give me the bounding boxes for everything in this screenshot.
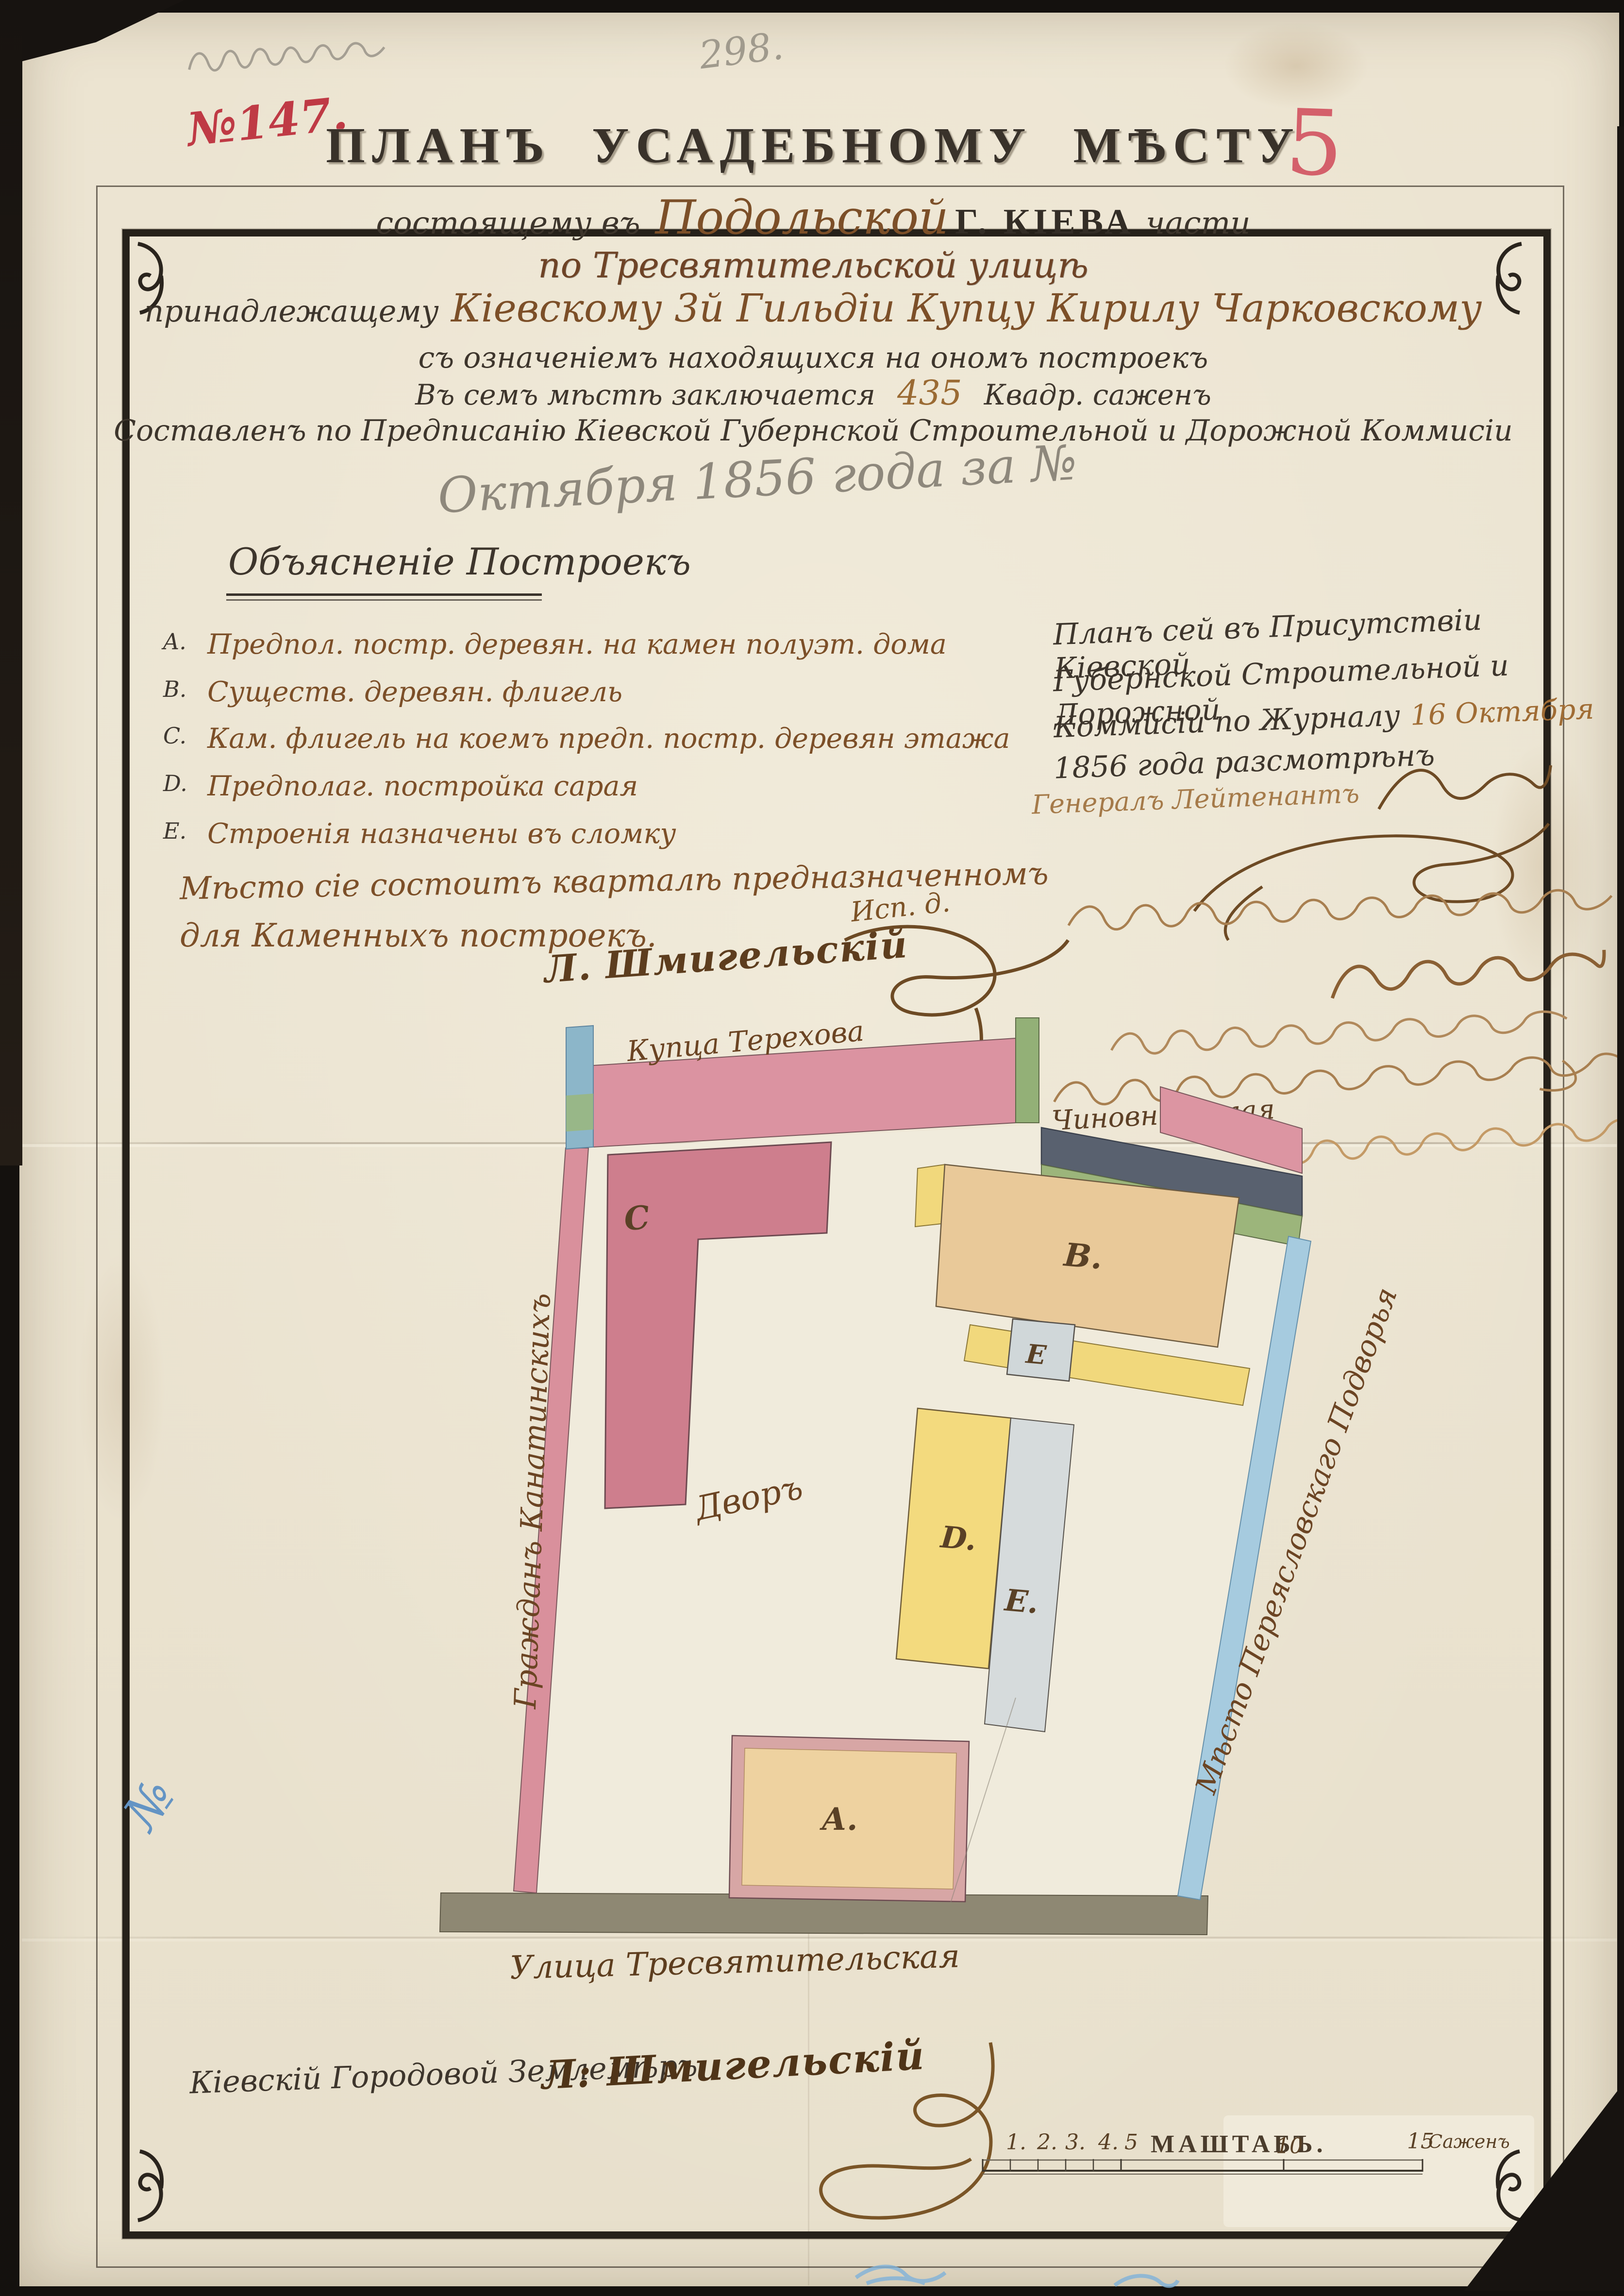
scale-tick-label-1: 1. (1006, 2130, 1026, 2155)
situated-city: Г. КІЕВА (955, 202, 1135, 242)
scale-tick-label-10: 10 (1276, 2134, 1303, 2159)
plan-letter-c: C (622, 1198, 652, 1238)
plan-letter-b: B. (1062, 1235, 1104, 1277)
boundary-cap-blue-green (566, 1094, 593, 1131)
corner-ornament-bottom-left (135, 2149, 193, 2222)
document-scan: 298. №147. 5 ПЛАНЪ УСАДЕБНОМУ МѢСТУ сост… (19, 13, 1619, 2286)
situated-prefix: состоящему въ (376, 205, 640, 241)
owner-name: Кіевскому 3й Гильдіи Купцу Кирилу Чарков… (451, 286, 1482, 331)
header-contents-line: съ означеніемъ находящихся на ономъ пост… (104, 341, 1522, 375)
legend-text-d: Предполаг. постройка сарая (207, 770, 638, 802)
situated-district: Подольской (655, 190, 949, 245)
legend-heading: Объясненіе Построекъ (228, 540, 691, 583)
boundary-cap-green (1016, 1018, 1039, 1123)
legend-text-e: Строенія назначены въ сломку (207, 818, 676, 850)
scale-tick-label-3: 3. (1065, 2130, 1086, 2155)
legend-item-d: D. Предполаг. постройка сарая (163, 770, 1134, 802)
header-area-line: Въ семъ мѣстѣ заключается 435 Квадр. саж… (104, 373, 1522, 413)
blue-wash-mark-1 (852, 2258, 949, 2292)
legend-key-a: A. (163, 628, 205, 655)
legend-item-a: A. Предпол. постр. деревян. на камен пол… (163, 628, 1134, 660)
legend-text-c: Кам. флигель на коемъ предп. постр. дере… (207, 723, 1010, 755)
scale-units: Саженъ (1428, 2131, 1510, 2152)
plan-letter-e-small: Е (1024, 1338, 1048, 1371)
plan-letter-e-strip: E. (1003, 1582, 1040, 1621)
area-units: Квадр. саженъ (984, 378, 1211, 411)
scale-bar (983, 2158, 1429, 2178)
legend-item-c: C. Кам. флигель на коемъ предп. постр. д… (163, 723, 1134, 755)
owner-prefix: принадлежащему (144, 293, 438, 329)
legend-key-b: B. (163, 676, 205, 702)
pencil-page-number: 298. (697, 24, 786, 78)
scale-tick-label-2: 2. (1037, 2130, 1057, 2155)
scan-edge-left (0, 0, 22, 1165)
header-street-line: по Тресвятительской улицѣ (104, 245, 1522, 286)
header-owner-line: принадлежащему Кіевскому 3й Гильдіи Купц… (104, 286, 1522, 331)
illegible-signature-general (1374, 751, 1554, 824)
scale-tick-label-4: 4. (1098, 2130, 1119, 2155)
legend-key-d: D. (163, 770, 205, 796)
legend-item-b: B. Существ. деревян. флигель (163, 676, 1134, 708)
scan-edge-right (1617, 126, 1624, 2291)
plan-letter-d: D. (938, 1519, 978, 1557)
legend-text-a: Предпол. постр. деревян. на камен полуэт… (207, 628, 947, 660)
scale-bar-group: 1. 2. 3. 4. 5 МАШТАБЪ. 10 15 Саженъ (961, 2130, 1495, 2183)
pencil-scribble (183, 24, 409, 84)
legend-underline-2 (226, 599, 542, 601)
header-situated-line: состоящему въ Подольской Г. КІЕВА части (104, 190, 1522, 245)
footer-signature-flourish (787, 2013, 1010, 2237)
legend-text-b: Существ. деревян. флигель (207, 676, 622, 708)
scale-tick-label-5: 5 (1124, 2130, 1138, 2155)
approval-line3-date: 16 Октября (1410, 692, 1595, 732)
area-prefix: Въ семъ мѣстѣ заключается (415, 378, 875, 411)
legend-key-c: C. (163, 723, 205, 749)
legend-item-e: E. Строенія назначены въ сломку (163, 818, 1134, 850)
legend-underline (226, 593, 542, 596)
situated-suffix: части (1146, 205, 1251, 241)
blue-wash-mark-2 (1112, 2269, 1180, 2296)
building-b-yellow-left (915, 1165, 945, 1227)
page-title: ПЛАНЪ УСАДЕБНОМУ МѢСТУ (104, 117, 1522, 174)
legend-key-e: E. (163, 818, 205, 844)
plan-letter-a: А. (820, 1801, 857, 1838)
area-value: 435 (897, 373, 962, 413)
